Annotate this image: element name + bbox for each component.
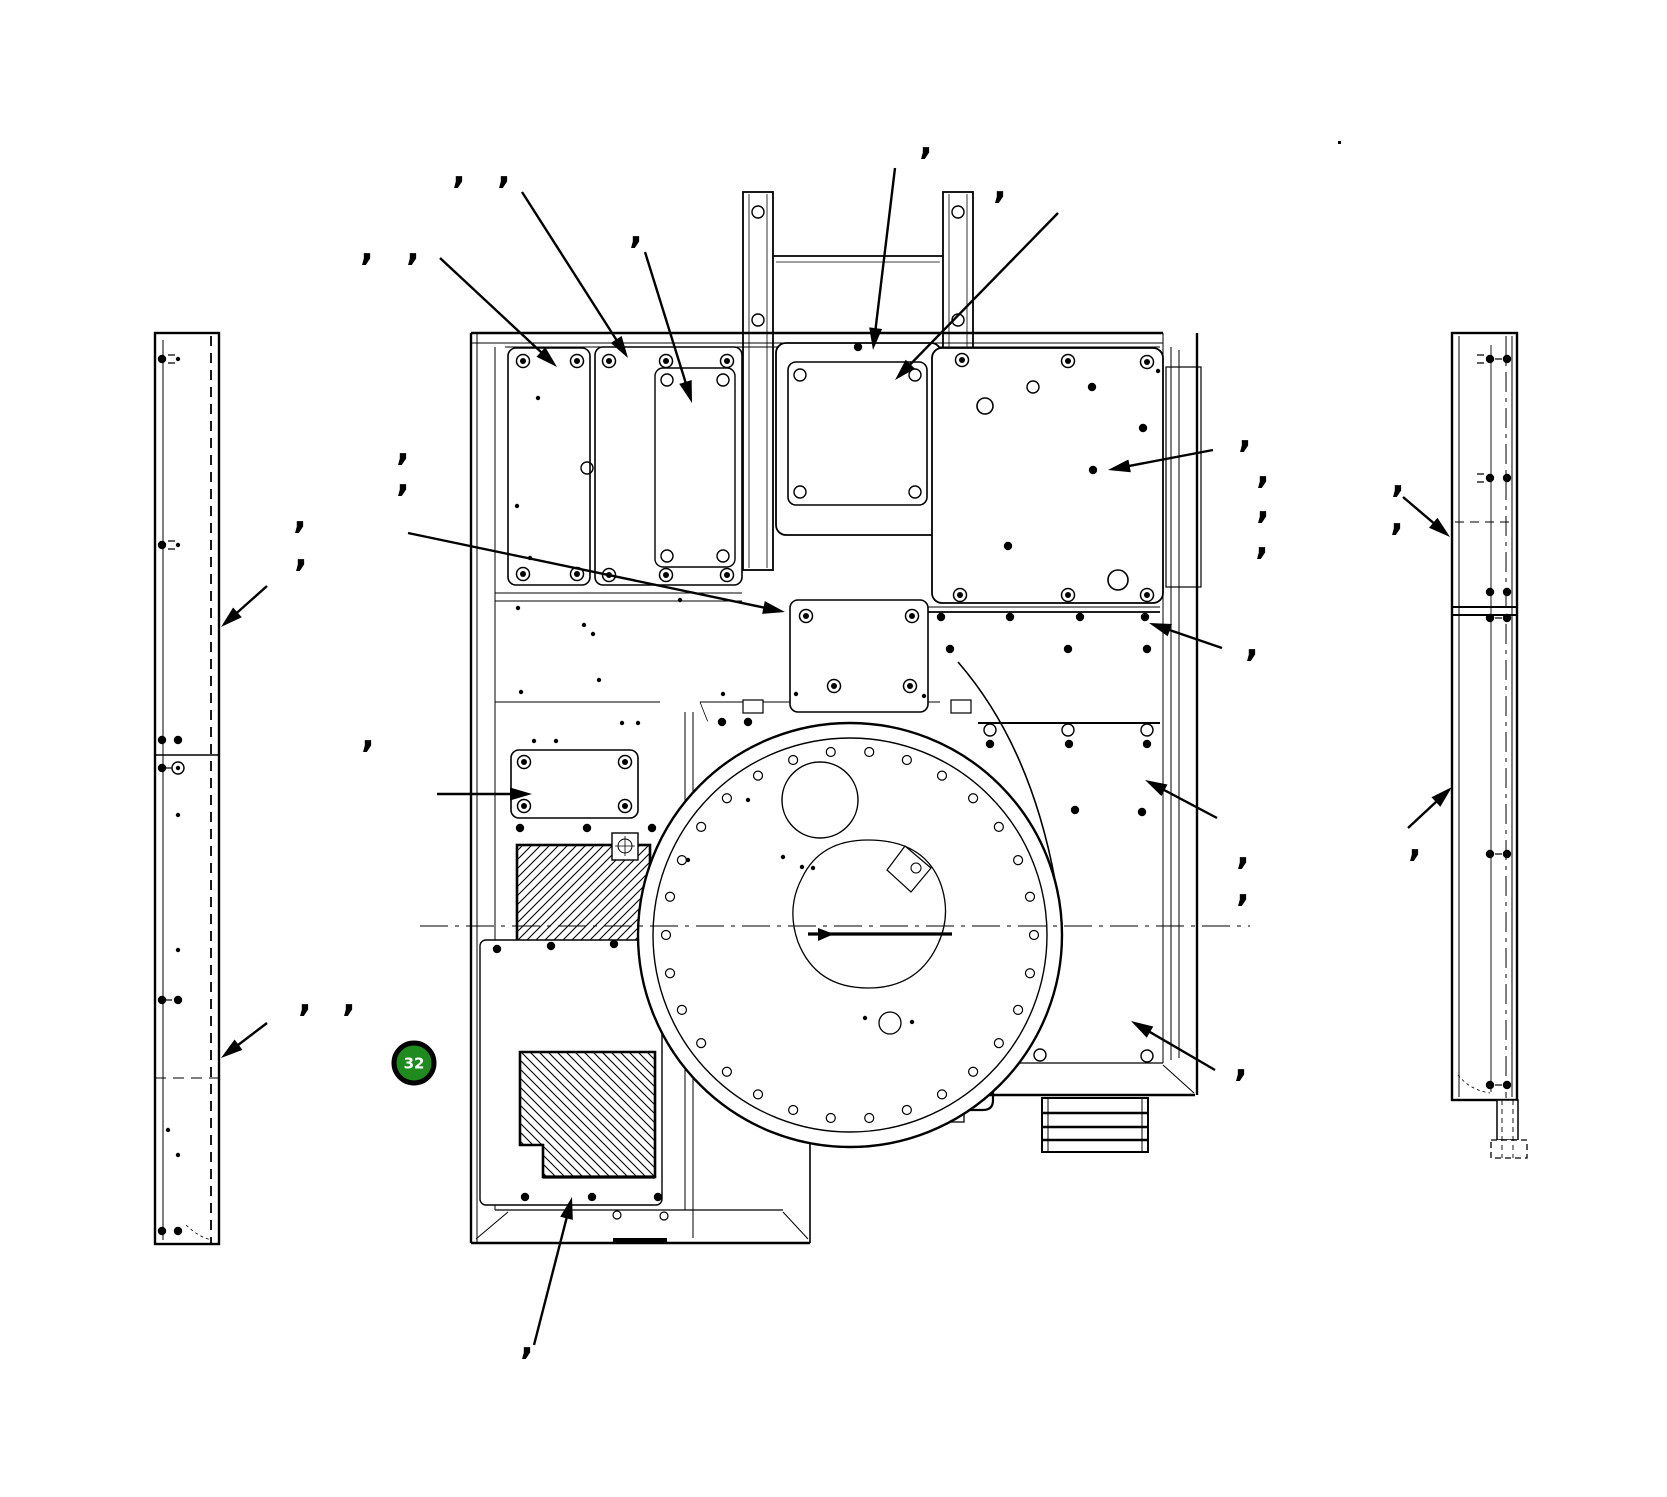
arrow-right-mid-panel	[1149, 623, 1222, 648]
left-side-panel	[155, 333, 219, 1244]
upper-bore	[782, 762, 858, 838]
callout-mark: ,	[1236, 832, 1250, 873]
right-large-panel	[932, 348, 1163, 603]
callout-mark: ,	[1390, 498, 1404, 539]
callout-mark: ,	[1255, 522, 1269, 563]
badge-number: 32	[404, 1055, 425, 1073]
loose-fasteners	[516, 598, 752, 726]
callout-mark: ,	[1245, 624, 1259, 665]
callout-mark: ,	[1408, 824, 1422, 865]
arrow-top-left-panel-1	[440, 258, 557, 367]
callout-mark: ,	[360, 228, 374, 269]
foot-block	[1042, 1098, 1148, 1152]
mounting-post-left	[743, 192, 773, 570]
callout-mark: ,	[406, 228, 420, 269]
callout-mark: ,	[1391, 460, 1405, 501]
callout-mark: ,	[1256, 486, 1270, 527]
callout-mark: ,	[452, 151, 466, 192]
top-left-cover-panel-2	[595, 347, 742, 585]
callout-mark: ,	[396, 459, 410, 500]
item-callout-badge[interactable]: 32	[394, 1043, 434, 1083]
arrow-right-side-panel-upper	[1403, 497, 1450, 537]
exploded-parts-drawing: ,,,,,,,,,,,,,,,,,,,,,,,,,,32	[0, 0, 1667, 1497]
arrow-left-side-panel-upper	[221, 586, 267, 627]
callout-mark: ,	[497, 151, 511, 192]
tick-dot	[1338, 141, 1341, 144]
inner-access-cover	[655, 368, 735, 567]
callout-mark: ,	[520, 1322, 534, 1363]
arrow-bottom-panel	[534, 1197, 573, 1345]
mid-left-panel	[511, 721, 656, 832]
callout-mark: ,	[1236, 869, 1250, 910]
callout-mark: ,	[993, 166, 1007, 207]
arrow-left-side-panel-lower	[221, 1023, 267, 1058]
callout-mark: ,	[293, 496, 307, 537]
arrow-center-square-panel-a	[869, 168, 895, 350]
bottom-left-panel	[480, 940, 668, 1220]
callout-mark: ,	[1234, 1044, 1248, 1085]
callout-mark: ,	[629, 211, 643, 252]
center-access-panel	[790, 600, 928, 712]
callout-mark: ,	[294, 534, 308, 575]
callout-mark: ,	[342, 979, 356, 1020]
center-square-panel	[776, 343, 941, 535]
drawing-canvas: ,,,,,,,,,,,,,,,,,,,,,,,,,,32	[0, 0, 1667, 1497]
callout-mark: ,	[298, 979, 312, 1020]
right-side-panel	[1452, 333, 1527, 1158]
callout-mark: ,	[919, 122, 933, 163]
callout-mark: ,	[361, 715, 375, 756]
turret-flange	[638, 723, 1062, 1147]
arrow-right-side-panel-lower	[1408, 787, 1452, 828]
top-left-cover-panel-1	[508, 348, 593, 585]
arrow-right-lower-panel	[1145, 780, 1217, 818]
right-mid-panel	[937, 613, 1153, 748]
right-panel-foot	[1491, 1100, 1527, 1158]
callout-mark: ,	[1238, 415, 1252, 456]
